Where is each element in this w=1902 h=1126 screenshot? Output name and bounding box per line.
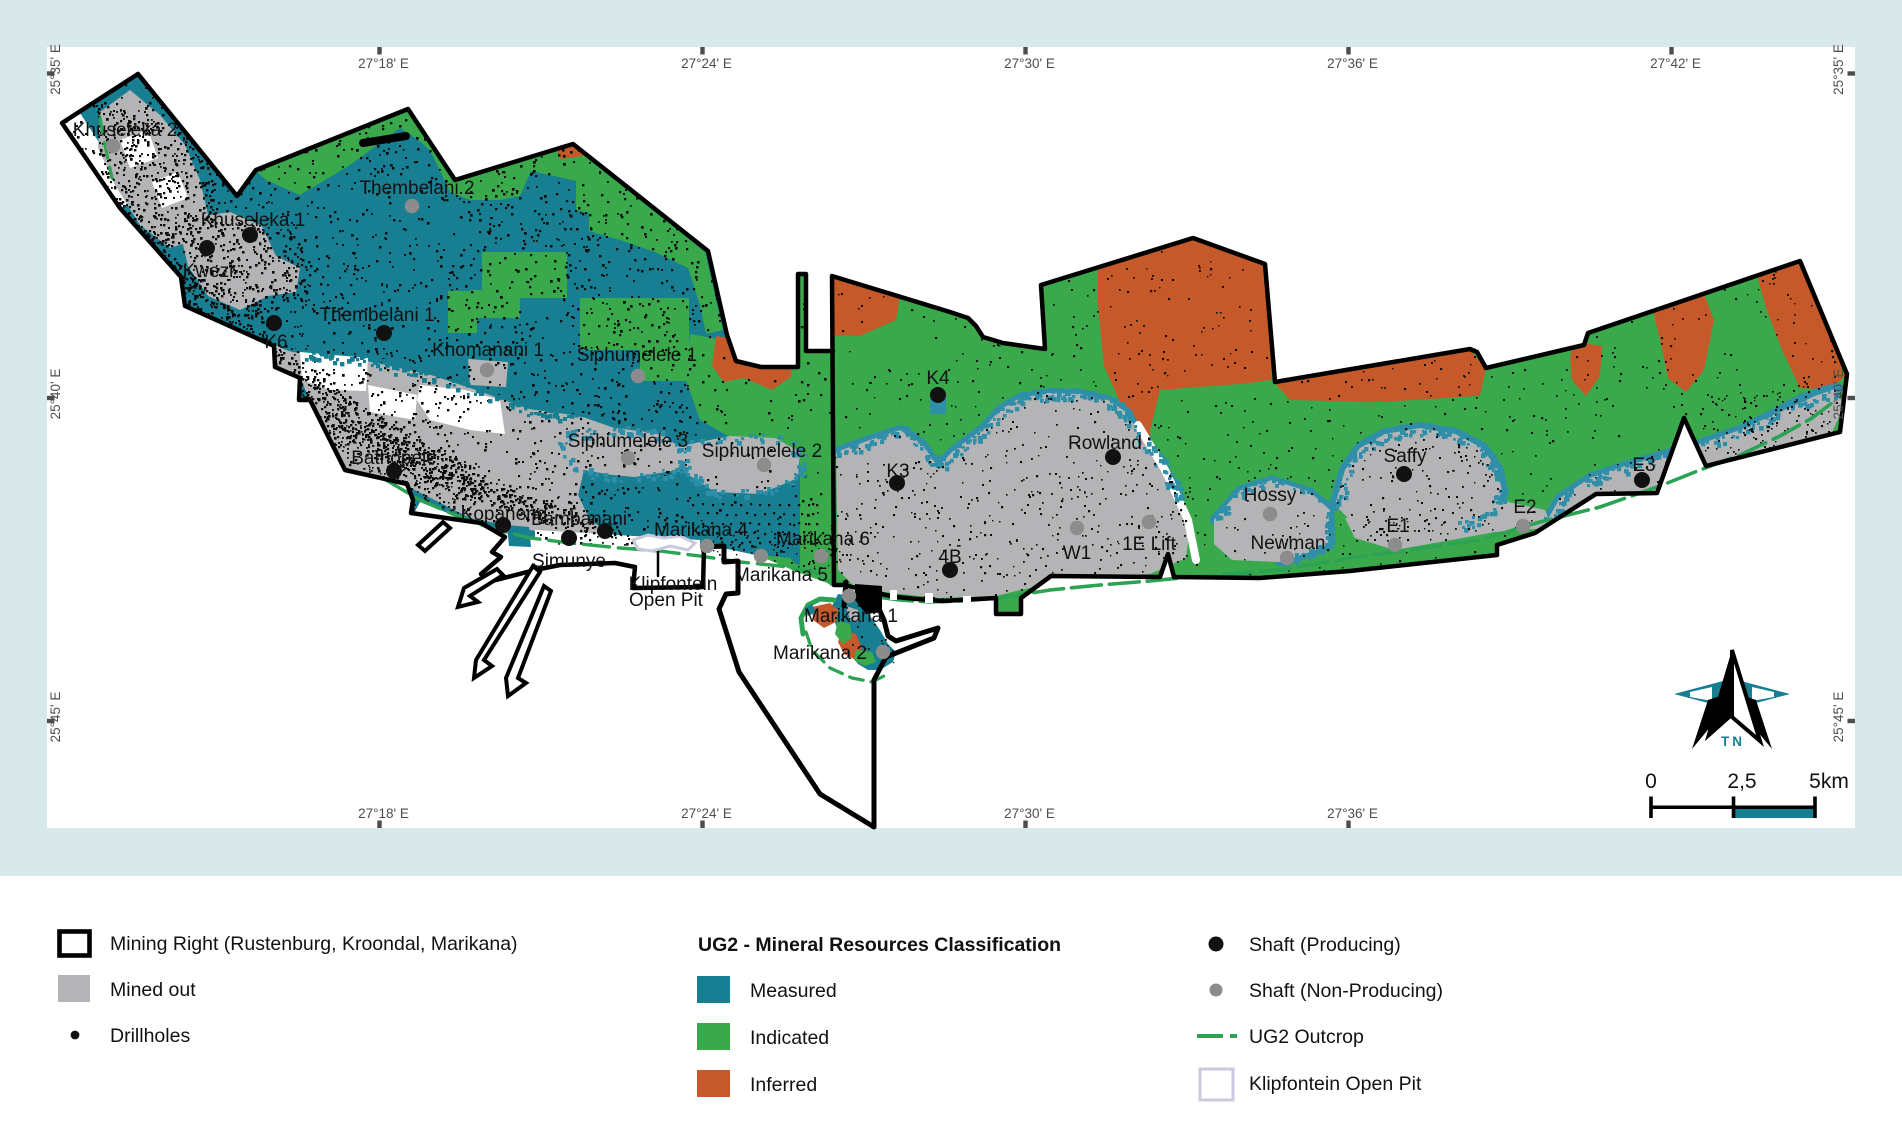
svg-text:25°40' E: 25°40' E: [1831, 369, 1846, 420]
svg-text:Thembelani 2: Thembelani 2: [359, 178, 474, 199]
svg-text:K4: K4: [926, 368, 950, 389]
svg-text:27°18' E: 27°18' E: [358, 806, 409, 821]
svg-text:K3: K3: [886, 461, 909, 482]
svg-text:Thembelani 1: Thembelani 1: [319, 305, 434, 326]
svg-text:25°40' E: 25°40' E: [48, 369, 63, 420]
svg-text:Marikana 2: Marikana 2: [773, 643, 867, 664]
svg-text:Marikana 4: Marikana 4: [654, 520, 748, 541]
svg-text:E3: E3: [1632, 455, 1655, 476]
svg-text:Measured: Measured: [750, 980, 837, 1002]
svg-text:0: 0: [1645, 770, 1657, 793]
svg-text:27°30' E: 27°30' E: [1004, 806, 1055, 821]
svg-text:Siphumelele 3: Siphumelele 3: [568, 431, 688, 452]
svg-text:Siphumelele 2: Siphumelele 2: [702, 441, 822, 462]
svg-text:TN: TN: [1721, 734, 1745, 749]
svg-text:Shaft (Non-Producing): Shaft (Non-Producing): [1249, 980, 1443, 1002]
svg-text:27°36' E: 27°36' E: [1327, 56, 1378, 71]
svg-text:27°18' E: 27°18' E: [358, 56, 409, 71]
svg-text:E2: E2: [1513, 497, 1536, 518]
svg-text:27°30' E: 27°30' E: [1004, 56, 1055, 71]
svg-text:Newman: Newman: [1251, 533, 1326, 554]
svg-text:Drillholes: Drillholes: [110, 1025, 190, 1047]
svg-text:Mining Right (Rustenburg, Kroo: Mining Right (Rustenburg, Kroondal, Mari…: [110, 933, 518, 955]
svg-text:Shaft (Producing): Shaft (Producing): [1249, 934, 1401, 956]
svg-text:E1: E1: [1386, 516, 1409, 537]
svg-text:Klipfontein Open Pit: Klipfontein Open Pit: [1249, 1073, 1422, 1095]
svg-text:5km: 5km: [1809, 770, 1849, 793]
svg-text:UG2 - Mineral Resources Classi: UG2 - Mineral Resources Classification: [698, 934, 1061, 956]
svg-text:Marikana 5: Marikana 5: [734, 565, 828, 586]
svg-text:Bambanani: Bambanani: [531, 509, 627, 530]
svg-text:1E Lift: 1E Lift: [1122, 534, 1177, 555]
svg-text:27°42' E: 27°42' E: [1650, 56, 1701, 71]
svg-text:Inferred: Inferred: [750, 1074, 817, 1096]
svg-text:UG2 Outcrop: UG2 Outcrop: [1249, 1026, 1364, 1048]
svg-text:Mined out: Mined out: [110, 979, 196, 1001]
svg-text:Khomanani 1: Khomanani 1: [432, 340, 544, 361]
svg-text:Saffy: Saffy: [1384, 446, 1427, 467]
svg-text:Open Pit: Open Pit: [629, 590, 704, 611]
svg-text:Rowland: Rowland: [1068, 433, 1142, 454]
svg-text:25°45' E: 25°45' E: [48, 692, 63, 743]
svg-text:Indicated: Indicated: [750, 1027, 829, 1049]
svg-text:Bathopele: Bathopele: [351, 448, 437, 469]
svg-text:W1: W1: [1063, 543, 1092, 564]
svg-text:Simunye: Simunye: [532, 551, 606, 572]
svg-text:Marikana 1: Marikana 1: [804, 606, 898, 627]
svg-text:2,5: 2,5: [1727, 770, 1756, 793]
svg-text:25°35' E: 25°35' E: [48, 44, 63, 95]
svg-text:27°24' E: 27°24' E: [681, 56, 732, 71]
svg-text:4B: 4B: [938, 547, 961, 568]
svg-text:25°45' E: 25°45' E: [1831, 692, 1846, 743]
svg-text:Marikana 6: Marikana 6: [776, 529, 870, 550]
svg-text:Hossy: Hossy: [1244, 485, 1297, 506]
svg-text:Siphumelele 1: Siphumelele 1: [577, 345, 697, 366]
svg-text:K6: K6: [264, 332, 287, 353]
svg-text:27°24' E: 27°24' E: [681, 806, 732, 821]
svg-text:25°35' E: 25°35' E: [1831, 44, 1846, 95]
svg-text:Khuseleka 2: Khuseleka 2: [73, 120, 178, 141]
svg-text:Khuseleka 1: Khuseleka 1: [201, 210, 306, 231]
svg-text:Kwezi: Kwezi: [183, 261, 234, 282]
svg-text:27°36' E: 27°36' E: [1327, 806, 1378, 821]
